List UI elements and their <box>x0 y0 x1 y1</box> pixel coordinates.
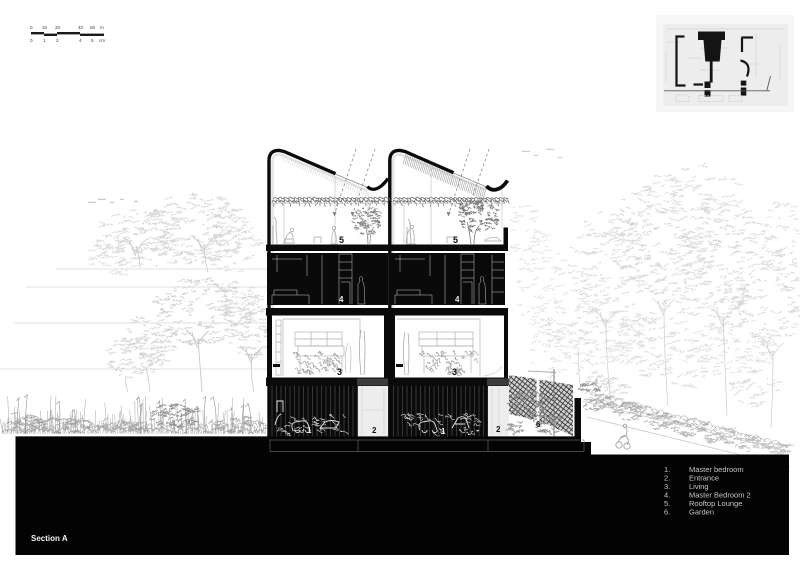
svg-text:10: 10 <box>42 25 48 30</box>
svg-text:6: 6 <box>536 420 541 429</box>
svg-text:3: 3 <box>337 367 342 377</box>
svg-text:4: 4 <box>455 295 460 304</box>
svg-text:5: 5 <box>91 38 94 43</box>
svg-text:0: 0 <box>30 38 33 43</box>
svg-text:40: 40 <box>78 25 84 30</box>
svg-text:1: 1 <box>43 38 46 43</box>
svg-text:5: 5 <box>339 235 344 245</box>
svg-text:2: 2 <box>496 425 501 434</box>
svg-text:5: 5 <box>453 235 458 245</box>
svg-text:1: 1 <box>307 426 312 435</box>
svg-text:2: 2 <box>372 426 377 435</box>
svg-text:Section A: Section A <box>31 534 68 543</box>
svg-text:6.: 6. <box>664 508 670 517</box>
svg-text:2: 2 <box>56 38 59 43</box>
svg-text:4: 4 <box>339 295 344 304</box>
svg-text:1: 1 <box>441 427 446 436</box>
svg-text:4: 4 <box>79 38 82 43</box>
svg-text:Garden: Garden <box>689 508 714 517</box>
svg-text:50: 50 <box>90 25 96 30</box>
svg-text:3: 3 <box>452 367 457 377</box>
svg-text:cm: cm <box>99 38 105 43</box>
svg-text:20: 20 <box>55 25 61 30</box>
svg-text:m: m <box>100 25 104 30</box>
svg-text:0: 0 <box>30 25 33 30</box>
